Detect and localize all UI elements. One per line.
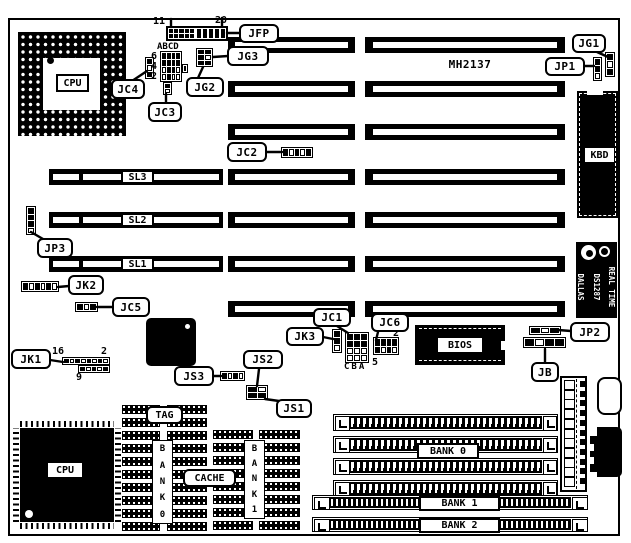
dip-socket: [259, 456, 300, 465]
power-pin: [580, 410, 585, 416]
pin-cell: [607, 69, 613, 75]
pin-cell: [29, 283, 34, 290]
jc4-stub: [163, 82, 172, 95]
pin-cell: [46, 283, 51, 290]
cpu-chip-label: CPU: [46, 461, 84, 479]
pin-cell: [222, 373, 227, 379]
qfp-pins-right: [115, 428, 121, 522]
power-pin-socket: [564, 419, 575, 429]
jp3-label: JP3: [37, 238, 73, 258]
power-connector-divider: [576, 379, 577, 489]
dip-socket: [259, 469, 300, 478]
jc6-jumper-grid: [373, 337, 399, 355]
kb-connector-notch: [589, 457, 594, 464]
jg1-strip: [605, 52, 615, 77]
pin-cell: [595, 59, 600, 65]
pin-cell: [595, 66, 600, 72]
jc5-header: [75, 302, 98, 312]
power-pin: [580, 391, 585, 397]
jc4-side-pin: [182, 64, 188, 73]
pin-cell: [84, 304, 90, 310]
isa-slot-row3-right: [365, 124, 565, 140]
pin-cell: [205, 61, 211, 65]
board-model-text: MH2137: [444, 58, 496, 71]
power-pin-socket: [564, 477, 575, 487]
dip-socket: [259, 521, 300, 530]
pin-cell: [334, 338, 340, 344]
pin-cell: [545, 339, 554, 346]
power-pin: [580, 430, 585, 436]
pin-cell: [98, 359, 103, 363]
pin-cell: [283, 149, 288, 156]
asic-chip: [146, 318, 196, 366]
pin-cell: [334, 345, 340, 351]
power-pin: [580, 400, 585, 406]
pin-cell: [354, 355, 360, 361]
pin-cell: [306, 149, 311, 156]
pin-cell: [103, 367, 108, 371]
jc4-jumper-grid: [160, 51, 182, 82]
jc1-col-letters-annotation: CBA: [344, 363, 366, 372]
power-pin: [580, 449, 585, 455]
jp2-header2: [523, 337, 566, 348]
isa-slot-row4-right: [365, 169, 565, 185]
rtc-logo-dot: [586, 250, 593, 257]
pin-cell: [361, 341, 367, 347]
pin-cell: [172, 67, 176, 73]
pin-cell: [162, 53, 166, 59]
bios-dash-top: [419, 328, 501, 329]
pin-cell: [295, 149, 300, 156]
dip-socket: [167, 509, 207, 518]
dip-socket: [122, 431, 160, 440]
pin-cell: [607, 54, 613, 60]
pin-cell: [334, 331, 340, 337]
pin-cell: [172, 53, 176, 59]
pin-cell: [347, 355, 353, 361]
power-pin-socket: [564, 458, 575, 468]
pin-cell: [172, 74, 176, 80]
rtc-brand: DALLAS: [577, 273, 585, 300]
jfp-label: JFP: [239, 24, 279, 43]
pin-cell: [176, 60, 180, 66]
pin-cell: [41, 283, 46, 290]
kbd-chip-notch: [587, 91, 603, 95]
jfp-header: [166, 26, 228, 41]
pin-cell: [375, 347, 380, 354]
jfp-pin-grid: [169, 29, 194, 38]
pin-cell: [381, 339, 386, 346]
power-pin-socket: [564, 429, 575, 439]
pin-cell: [176, 67, 180, 73]
isa-slot-row1-right: [365, 37, 565, 53]
tag-label: TAG: [146, 406, 183, 424]
js2-label: JS2: [243, 350, 283, 369]
qfp-pin1-marker: [25, 510, 33, 518]
jp2-header1: [529, 326, 561, 335]
bank1-label: BANK 1: [419, 496, 500, 511]
bios-chip-notch: [501, 341, 505, 350]
pin-cell: [70, 359, 75, 363]
pin-cell: [198, 61, 204, 65]
power-pin-socket: [564, 399, 575, 409]
pin-cell: [347, 334, 353, 340]
dip-socket: [259, 443, 300, 452]
qfp-pins-bottom: [20, 523, 114, 529]
pin-cell: [87, 359, 92, 363]
power-pin: [580, 459, 585, 465]
dip-socket: [259, 482, 300, 491]
pin-cell: [80, 367, 85, 371]
asic-pin1-marker: [185, 324, 190, 329]
pin-cell: [535, 339, 544, 346]
din-connector-outline: [597, 377, 622, 415]
pin-cell: [248, 393, 257, 398]
bank0-column-letter: N: [160, 477, 165, 487]
dip-socket: [167, 496, 207, 505]
pin-cell: [381, 347, 386, 354]
pin-cell: [92, 359, 97, 363]
dip-socket: [213, 430, 253, 439]
pin-cell: [176, 74, 180, 80]
pin-cell: [541, 328, 550, 333]
pin-cell: [198, 55, 204, 59]
pin-cell: [258, 387, 267, 392]
bank1-column-letter: A: [252, 459, 257, 469]
jfp-pin-bars: [197, 29, 225, 38]
jk1-pin16-annotation: 16: [52, 347, 64, 357]
pin-cell: [258, 393, 267, 398]
jc2-header: [281, 147, 313, 158]
pin-cell: [347, 341, 353, 347]
jg3-header: [196, 48, 213, 67]
pin-cell: [167, 60, 171, 66]
isa-slot-row5-right: [365, 212, 565, 228]
pin-cell: [165, 84, 170, 88]
bank0-label: BANK 0: [417, 443, 479, 459]
power-pin-socket: [564, 467, 575, 477]
pin-cell: [347, 348, 353, 354]
dip-socket: [167, 457, 207, 466]
pin-cell: [64, 359, 69, 363]
pin-cell: [90, 304, 96, 310]
bank1-column-label: BANK1: [244, 440, 265, 519]
jk3-label: JK3: [286, 327, 324, 346]
sl3-slot-label: SL3: [121, 170, 154, 184]
power-connector: [560, 376, 587, 492]
jk2-header: [21, 281, 59, 292]
dip-socket: [167, 522, 207, 531]
jg2-label: JG2: [186, 77, 224, 97]
pin-cell: [172, 60, 176, 66]
rtc-chip-text: DALLAS DS1287 REAL TIME: [577, 260, 615, 314]
pin-cell: [531, 328, 540, 333]
bank0-column-letter: 0: [160, 510, 165, 520]
jfp-pin11-annotation: 11: [153, 17, 165, 27]
pin-cell: [205, 50, 211, 54]
pin-cell: [525, 339, 534, 346]
bios-label: BIOS: [437, 337, 483, 353]
pin-cell: [392, 339, 397, 346]
pin-cell: [162, 67, 166, 73]
isa-slot-row2-mid: [228, 81, 355, 97]
jc1-label: JC1: [313, 308, 351, 327]
jk1-pin2-annotation: 2: [101, 347, 107, 357]
pin-cell: [198, 50, 204, 54]
jfp-pin20-annotation: 20: [215, 16, 227, 26]
jk2-label: JK2: [68, 275, 104, 295]
js3-header: [220, 371, 245, 381]
sl2-slot-label: SL2: [121, 213, 154, 227]
jc1-jumper-grid: [345, 332, 369, 363]
pin-cell: [165, 89, 170, 93]
pin-cell: [205, 55, 211, 59]
bank1-column-letter: K: [252, 490, 257, 500]
pin-cell: [52, 283, 57, 290]
pin-cell: [77, 304, 83, 310]
pin-cell: [228, 373, 233, 379]
pin-cell: [28, 228, 34, 234]
dip-socket: [259, 430, 300, 439]
pin-cell: [233, 373, 238, 379]
pin-cell: [361, 334, 367, 340]
power-pin-socket: [564, 409, 575, 419]
jc6-pin5-annotation: 5: [372, 358, 378, 368]
jp2-label: JP2: [570, 322, 610, 342]
pin-cell: [239, 373, 244, 379]
rtc-logo-ring: [599, 246, 610, 257]
motherboard-diagram: MH2137 CPU CPU KBD DALLAS DS1287 REAL TI…: [0, 0, 631, 543]
power-pin: [580, 381, 585, 387]
pin-cell: [387, 339, 392, 346]
qfp-pins-left: [13, 428, 19, 522]
jk3-strip: [332, 329, 342, 353]
dip-socket: [167, 431, 207, 440]
jp1-strip: [593, 57, 602, 81]
pin-cell: [23, 283, 28, 290]
simm-slot-bank0-3: [333, 458, 558, 475]
bank0-column-label: BANK0: [152, 440, 173, 524]
js3-label: JS3: [174, 366, 214, 386]
dip-socket: [167, 444, 207, 453]
pin-cell: [92, 367, 97, 371]
bank1-column-letter: B: [252, 444, 257, 454]
pin-cell: [289, 149, 294, 156]
power-pin-socket: [564, 380, 575, 390]
power-pin: [580, 478, 585, 484]
isa-slot-row6-right: [365, 256, 565, 272]
pin-cell: [35, 283, 40, 290]
jc4-pin2-annotation: 2: [151, 72, 157, 82]
bank1-column-letter: 1: [252, 505, 257, 515]
pin-cell: [354, 348, 360, 354]
pin-cell: [167, 74, 171, 80]
simm-slot-bank0-1: [333, 414, 558, 431]
cpu-socket-label: CPU: [56, 74, 89, 92]
jk1-header-row1: [62, 357, 110, 365]
jk1-label: JK1: [11, 349, 51, 369]
isa-slot-row6-mid: [228, 256, 355, 272]
js2-jumper: [246, 385, 268, 400]
isa-slot-row3-mid: [228, 124, 355, 140]
kbd-label: KBD: [584, 147, 615, 163]
power-pin-socket: [564, 438, 575, 448]
pin-cell: [607, 61, 613, 67]
qfp-pins-top: [20, 421, 114, 427]
cache-label: CACHE: [183, 469, 236, 487]
bank0-column-letter: K: [160, 493, 165, 503]
pin-cell: [392, 347, 397, 354]
pin-cell: [167, 67, 171, 73]
keyboard-connector: [597, 427, 622, 477]
pin-cell: [550, 328, 559, 333]
pin-cell: [75, 359, 80, 363]
kb-connector-notch: [589, 444, 594, 451]
bank0-column-letter: B: [160, 444, 165, 454]
rtc-type: REAL TIME: [608, 267, 616, 308]
pin-cell: [162, 60, 166, 66]
jc6-label: JC6: [371, 313, 409, 332]
pin-cell: [361, 355, 367, 361]
pin-cell: [555, 339, 564, 346]
jc4-label: JC4: [111, 79, 145, 99]
pin-cell: [103, 359, 108, 363]
pin-cell: [595, 73, 600, 79]
power-pin: [580, 468, 585, 474]
jc3-label: JC3: [148, 102, 182, 122]
pin-cell: [97, 367, 102, 371]
power-pin: [580, 439, 585, 445]
power-pin-socket: [564, 448, 575, 458]
bios-dash-bottom: [419, 360, 501, 361]
jk1-header-row2: [78, 365, 110, 373]
jp3-strip: [26, 206, 36, 235]
dip-socket: [259, 508, 300, 517]
dip-socket: [259, 495, 300, 504]
jg1-label: JG1: [572, 34, 606, 53]
power-pin: [580, 420, 585, 426]
pin-cell: [81, 359, 86, 363]
pin-cell: [387, 347, 392, 354]
sl1-slot-label: SL1: [121, 257, 154, 271]
jc5-label: JC5: [112, 297, 150, 317]
jb-label: JB: [531, 362, 559, 382]
pin-cell: [167, 53, 171, 59]
jg3-label: JG3: [227, 46, 269, 66]
pin-cell: [354, 341, 360, 347]
dip-socket: [213, 521, 253, 530]
jp1-label: JP1: [545, 57, 585, 76]
pin-cell: [248, 387, 257, 392]
isa-slot-row5-mid: [228, 212, 355, 228]
pin-cell: [176, 53, 180, 59]
pin-cell: [86, 367, 91, 371]
pga-pin1-marker: [47, 57, 54, 64]
pin-cell: [375, 339, 380, 346]
bank1-column-letter: N: [252, 474, 257, 484]
pin-cell: [184, 66, 186, 71]
jc2-label: JC2: [227, 142, 267, 162]
pin-cell: [300, 149, 305, 156]
pin-cell: [361, 348, 367, 354]
js1-label: JS1: [276, 399, 312, 418]
pin-cell: [28, 221, 34, 227]
pin-cell: [162, 74, 166, 80]
pin-cell: [28, 208, 34, 214]
bank2-label: BANK 2: [419, 518, 500, 533]
jc4-col-letters-annotation: ABCD: [157, 43, 179, 52]
power-pin-socket: [564, 390, 575, 400]
jk1-pin9-annotation: 9: [76, 373, 82, 383]
isa-slot-row2-right: [365, 81, 565, 97]
rtc-part: DS1287: [592, 273, 600, 300]
pin-cell: [354, 334, 360, 340]
bank0-column-letter: A: [160, 461, 165, 471]
pin-cell: [28, 215, 34, 221]
isa-slot-row4-mid: [228, 169, 355, 185]
